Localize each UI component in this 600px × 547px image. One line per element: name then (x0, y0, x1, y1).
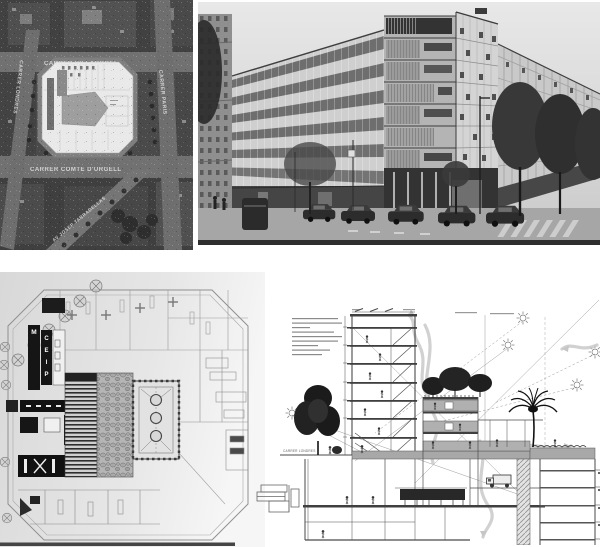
roof-garden-trees (422, 367, 492, 398)
svg-text:P: P (44, 372, 48, 378)
dumpster-shape (242, 198, 268, 230)
tower-section (343, 309, 417, 456)
top-micro-labels (352, 309, 514, 314)
street-label-urgell: CARRER COMTE D'URGELL (30, 167, 122, 173)
section-drawing-svg: CARRER LONDRES (255, 283, 600, 545)
street-label-villarroel: CARRER VILLARROEL (44, 61, 118, 67)
palm-tree-icon (509, 388, 557, 447)
road-dark-edge (198, 240, 600, 245)
level-ticks (595, 470, 600, 539)
green-roof-ticks (425, 395, 473, 397)
aerial-map-svg: CARRER VILLARROEL CARRER COMTE D'URGELL … (0, 0, 193, 250)
pool-court (133, 381, 179, 459)
legend-text-block (292, 318, 342, 355)
svg-text:C: C (44, 336, 49, 342)
section-drawing-figure: CARRER LONDRES (255, 283, 600, 545)
plan-letter-m: M (31, 329, 36, 336)
scan-bottom-edge (0, 543, 235, 547)
garden-court (97, 373, 133, 477)
truck-icon (487, 475, 512, 488)
middle-building-section (423, 395, 543, 451)
building-photo-figure (198, 2, 600, 245)
detail-fragment (257, 485, 299, 512)
floor-plan-figure: M C E I P (0, 272, 265, 547)
tower-building (384, 8, 498, 214)
svg-text:E: E (44, 348, 48, 354)
collage-canvas: CARRER VILLARROEL CARRER COMTE D'URGELL … (0, 0, 600, 547)
aerial-grain (0, 0, 193, 250)
street-sign-icon (348, 150, 355, 157)
striped-deck (65, 373, 97, 477)
building-photo-svg (198, 2, 600, 245)
buried-hall (400, 489, 465, 500)
aerial-map-figure: CARRER VILLARROEL CARRER COMTE D'URGELL … (0, 0, 193, 250)
rooftop-unit (475, 8, 487, 14)
floor-plan-svg: M C E I P (0, 272, 265, 547)
ramp-slabs (540, 470, 595, 541)
roof-collectors (355, 309, 393, 312)
section-street-label: CARRER LONDRES (283, 449, 316, 453)
retaining-wall (517, 459, 530, 545)
street-tree-section (294, 385, 342, 455)
